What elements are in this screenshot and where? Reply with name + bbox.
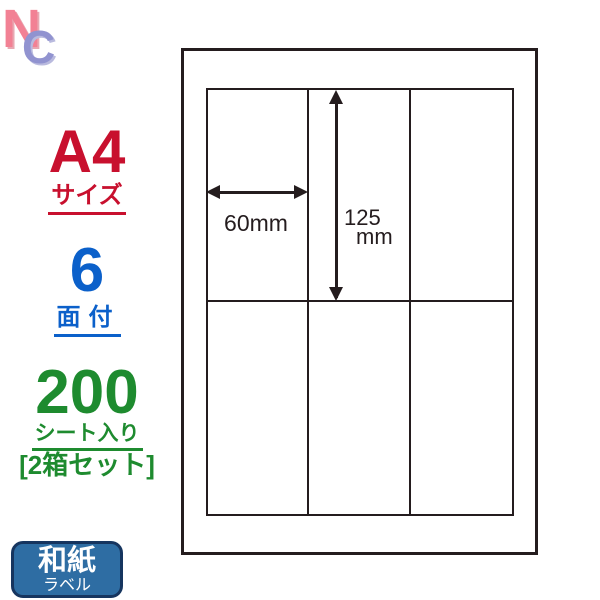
badge-title: 和紙 — [14, 546, 120, 577]
box-set-label: [2箱セット] — [7, 452, 167, 478]
label-cell — [411, 302, 512, 514]
label-cell — [309, 90, 410, 302]
arrow-up-icon — [329, 90, 343, 104]
height-dimension-label: 125 mm — [344, 208, 393, 246]
sheet-size-label: サイズ — [7, 184, 167, 215]
width-dimension-arrow — [214, 191, 302, 194]
arrow-left-icon — [206, 185, 220, 199]
sheet-count-label: シート入り — [7, 423, 167, 451]
arrow-down-icon — [329, 287, 343, 301]
spec-column: A4 サイズ 6 面付 200 シート入り [2箱セット] — [7, 0, 167, 600]
label-grid — [206, 88, 514, 516]
washi-label-badge: 和紙 ラベル — [11, 541, 123, 598]
label-cell — [208, 302, 309, 514]
sheet-count-value: 200 — [7, 362, 167, 424]
product-image: N C A4 サイズ 6 面付 200 シート入り [2箱セット] 和紙 ラベル — [0, 0, 600, 600]
badge-subtitle: ラベル — [14, 577, 120, 594]
labels-per-sheet-value: 6 — [7, 240, 167, 302]
sheet-size-value: A4 — [7, 122, 167, 182]
label-cell — [411, 90, 512, 302]
height-dimension-arrow — [335, 96, 338, 298]
label-cell — [309, 302, 410, 514]
arrow-right-icon — [294, 185, 308, 199]
labels-per-sheet-label: 面付 — [7, 306, 167, 337]
width-dimension-label: 60mm — [206, 210, 306, 237]
